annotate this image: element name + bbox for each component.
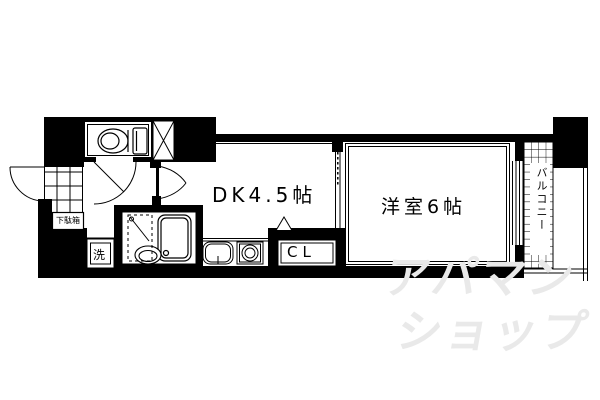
floorplan-page: アパマン ショップ DK4.5帖 洋室6帖 CL 下駄箱 洗 バルコニー — [0, 0, 600, 400]
dk-room-label: DK4.5帖 — [212, 179, 316, 208]
washer-label: 洗 — [93, 246, 105, 263]
partition-sliding-door — [336, 152, 341, 230]
pipe-shaft — [153, 121, 174, 160]
toilet-room — [85, 122, 151, 163]
kitchen-sink-icon — [203, 242, 233, 264]
window-sliding — [513, 161, 524, 245]
toilet-door-arc — [94, 162, 136, 204]
closet-label: CL — [287, 243, 316, 261]
western-room-label: 洋室6帖 — [381, 192, 466, 219]
balcony-label: バルコニー — [532, 167, 550, 259]
entrance-door-arc — [10, 167, 44, 201]
bathroom — [122, 212, 196, 264]
shoe-cabinet-label: 下駄箱 — [53, 215, 83, 226]
dk-door — [158, 166, 187, 199]
closet-door-triangle — [276, 217, 292, 231]
watermark-line2: ショップ — [392, 295, 595, 360]
stove-icon — [237, 242, 263, 264]
kitchen-counter — [200, 239, 269, 268]
